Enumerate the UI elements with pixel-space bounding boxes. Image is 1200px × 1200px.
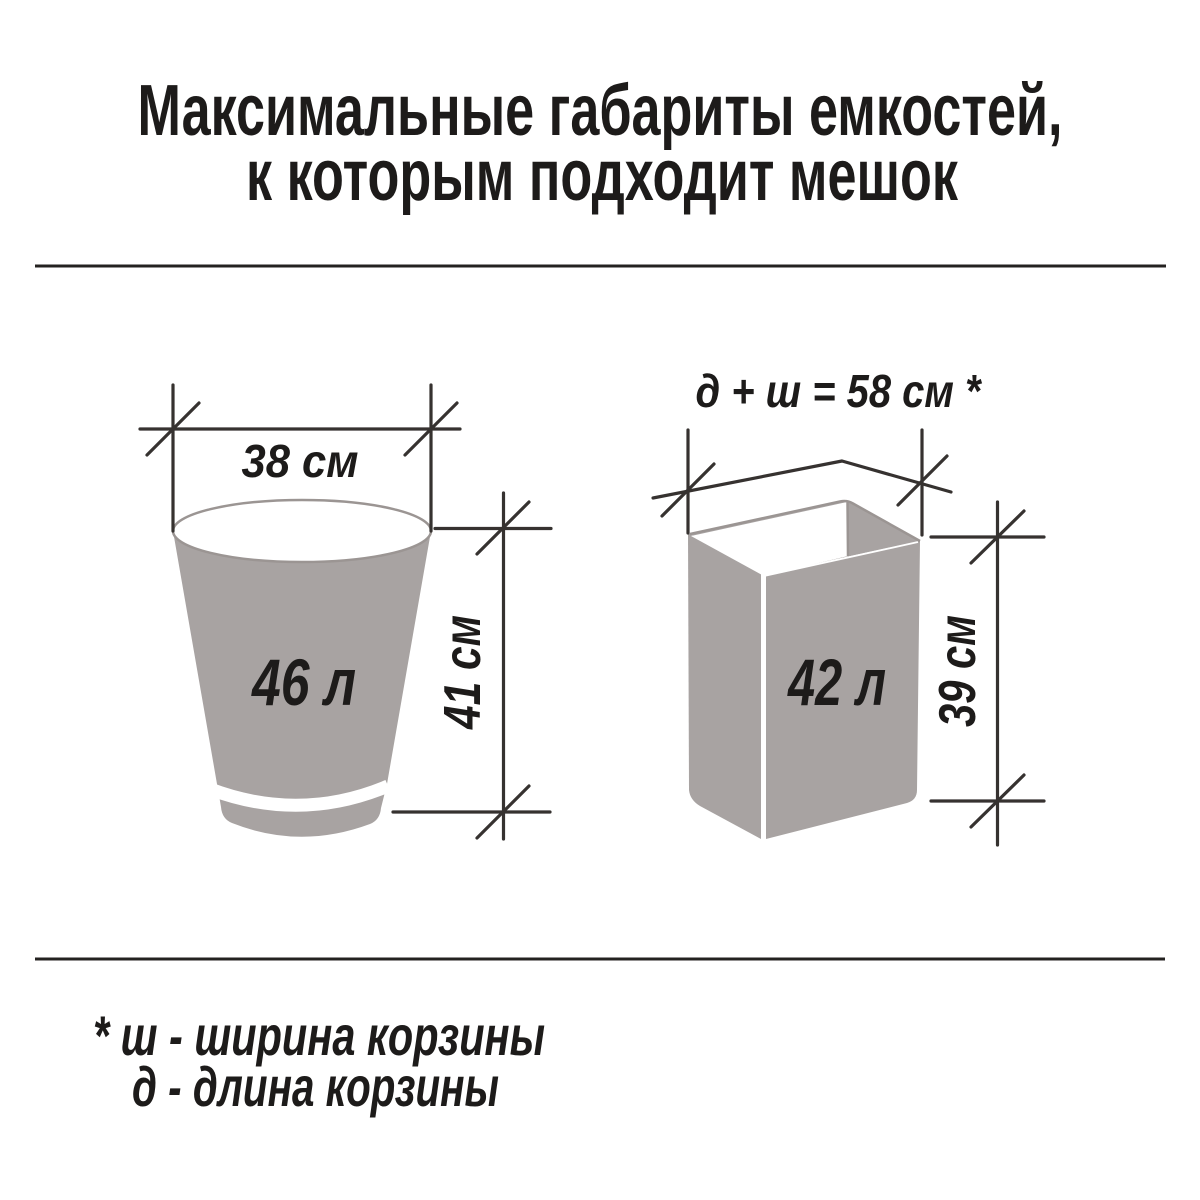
svg-text:д - длина корзины: д - длина корзины [132, 1055, 499, 1118]
svg-text:42 л: 42 л [787, 645, 886, 719]
svg-text:к которым подходит мешок: к которым подходит мешок [246, 136, 959, 216]
svg-text:39 см: 39 см [929, 615, 987, 727]
svg-text:41 см: 41 см [434, 615, 492, 730]
svg-text:46 л: 46 л [250, 645, 356, 719]
svg-text:38 см: 38 см [242, 435, 359, 487]
svg-text:д + ш = 58 см *: д + ш = 58 см * [696, 365, 983, 417]
